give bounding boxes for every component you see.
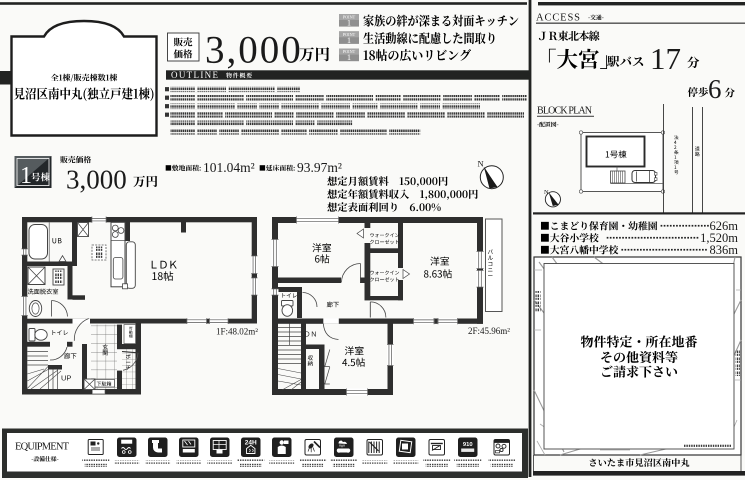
svg-text:1: 1 <box>347 53 351 62</box>
svg-text:ACCESS: ACCESS <box>536 13 580 24</box>
svg-text:3,000: 3,000 <box>66 165 127 195</box>
svg-text:1F:48.02m²: 1F:48.02m² <box>216 327 258 337</box>
svg-text:N: N <box>544 189 549 196</box>
svg-text:1: 1 <box>347 36 351 45</box>
svg-text:93.97m²: 93.97m² <box>297 160 342 175</box>
svg-text:101.04m²: 101.04m² <box>203 160 255 175</box>
svg-text:3,000: 3,000 <box>205 29 303 72</box>
svg-text:DN: DN <box>305 330 318 339</box>
svg-text:N: N <box>478 159 484 169</box>
svg-text:1: 1 <box>347 19 351 28</box>
svg-text:17: 17 <box>650 41 681 76</box>
svg-text:2F:45.96m²: 2F:45.96m² <box>468 326 510 336</box>
svg-text:910: 910 <box>463 442 473 448</box>
svg-text:1: 1 <box>20 163 32 189</box>
svg-text:UP: UP <box>61 374 71 383</box>
svg-text:EQUIPMENT: EQUIPMENT <box>15 442 70 453</box>
svg-text:836m: 836m <box>710 243 739 257</box>
svg-text:6: 6 <box>708 74 722 104</box>
svg-text:BLOCK PLAN: BLOCK PLAN <box>537 106 592 117</box>
